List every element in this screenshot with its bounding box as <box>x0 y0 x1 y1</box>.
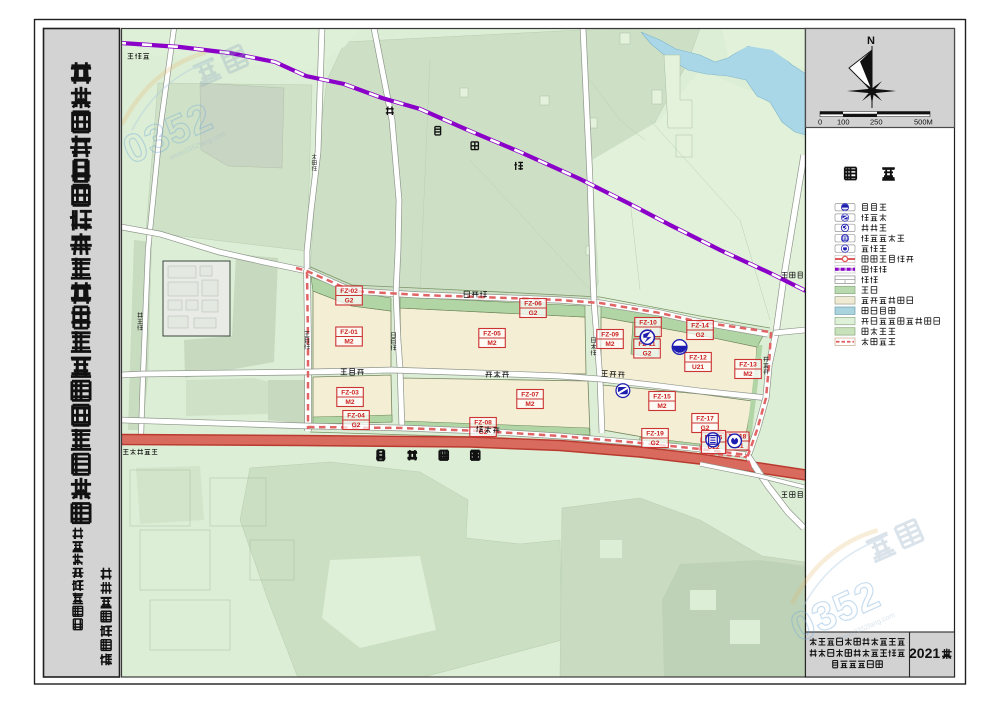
svg-text:0: 0 <box>818 118 822 127</box>
svg-text:FZ-15: FZ-15 <box>653 393 671 400</box>
svg-text:500M: 500M <box>914 118 933 127</box>
svg-text:FZ-17: FZ-17 <box>696 415 714 422</box>
svg-text:M2: M2 <box>345 399 354 406</box>
svg-text:FZ-06: FZ-06 <box>524 300 542 307</box>
svg-text:FZ-08: FZ-08 <box>474 419 492 426</box>
svg-text:FZ-05: FZ-05 <box>483 330 501 337</box>
svg-text:FZ-01: FZ-01 <box>340 329 358 336</box>
svg-text:M2: M2 <box>487 340 496 347</box>
svg-text:100: 100 <box>837 118 850 127</box>
svg-text:FZ-10: FZ-10 <box>639 319 657 326</box>
svg-text:U21: U21 <box>692 364 704 371</box>
svg-text:N: N <box>867 35 875 47</box>
svg-text:FZ-03: FZ-03 <box>341 389 359 396</box>
svg-text:G2: G2 <box>651 440 660 447</box>
svg-text:G2: G2 <box>696 332 705 339</box>
svg-text:G2: G2 <box>352 422 361 429</box>
svg-text:G2: G2 <box>643 351 652 358</box>
svg-text:M2: M2 <box>605 341 614 348</box>
svg-text:M2: M2 <box>525 401 534 408</box>
svg-text:FZ-02: FZ-02 <box>340 288 358 295</box>
svg-text:FZ-13: FZ-13 <box>739 361 757 368</box>
svg-text:G2: G2 <box>529 310 538 317</box>
svg-text:2021: 2021 <box>909 645 940 661</box>
svg-text:FZ-19: FZ-19 <box>646 430 664 437</box>
svg-text:G2: G2 <box>479 429 488 436</box>
svg-text:250: 250 <box>870 118 883 127</box>
svg-text:M2: M2 <box>743 371 752 378</box>
svg-text:FZ-07: FZ-07 <box>521 391 539 398</box>
svg-text:FZ-14: FZ-14 <box>691 322 709 329</box>
svg-text:FZ-04: FZ-04 <box>347 412 365 419</box>
svg-text:FZ-09: FZ-09 <box>601 331 619 338</box>
svg-text:FZ-12: FZ-12 <box>689 354 707 361</box>
svg-text:M2: M2 <box>344 339 353 346</box>
svg-text:M2: M2 <box>657 403 666 410</box>
svg-text:G2: G2 <box>345 298 354 305</box>
